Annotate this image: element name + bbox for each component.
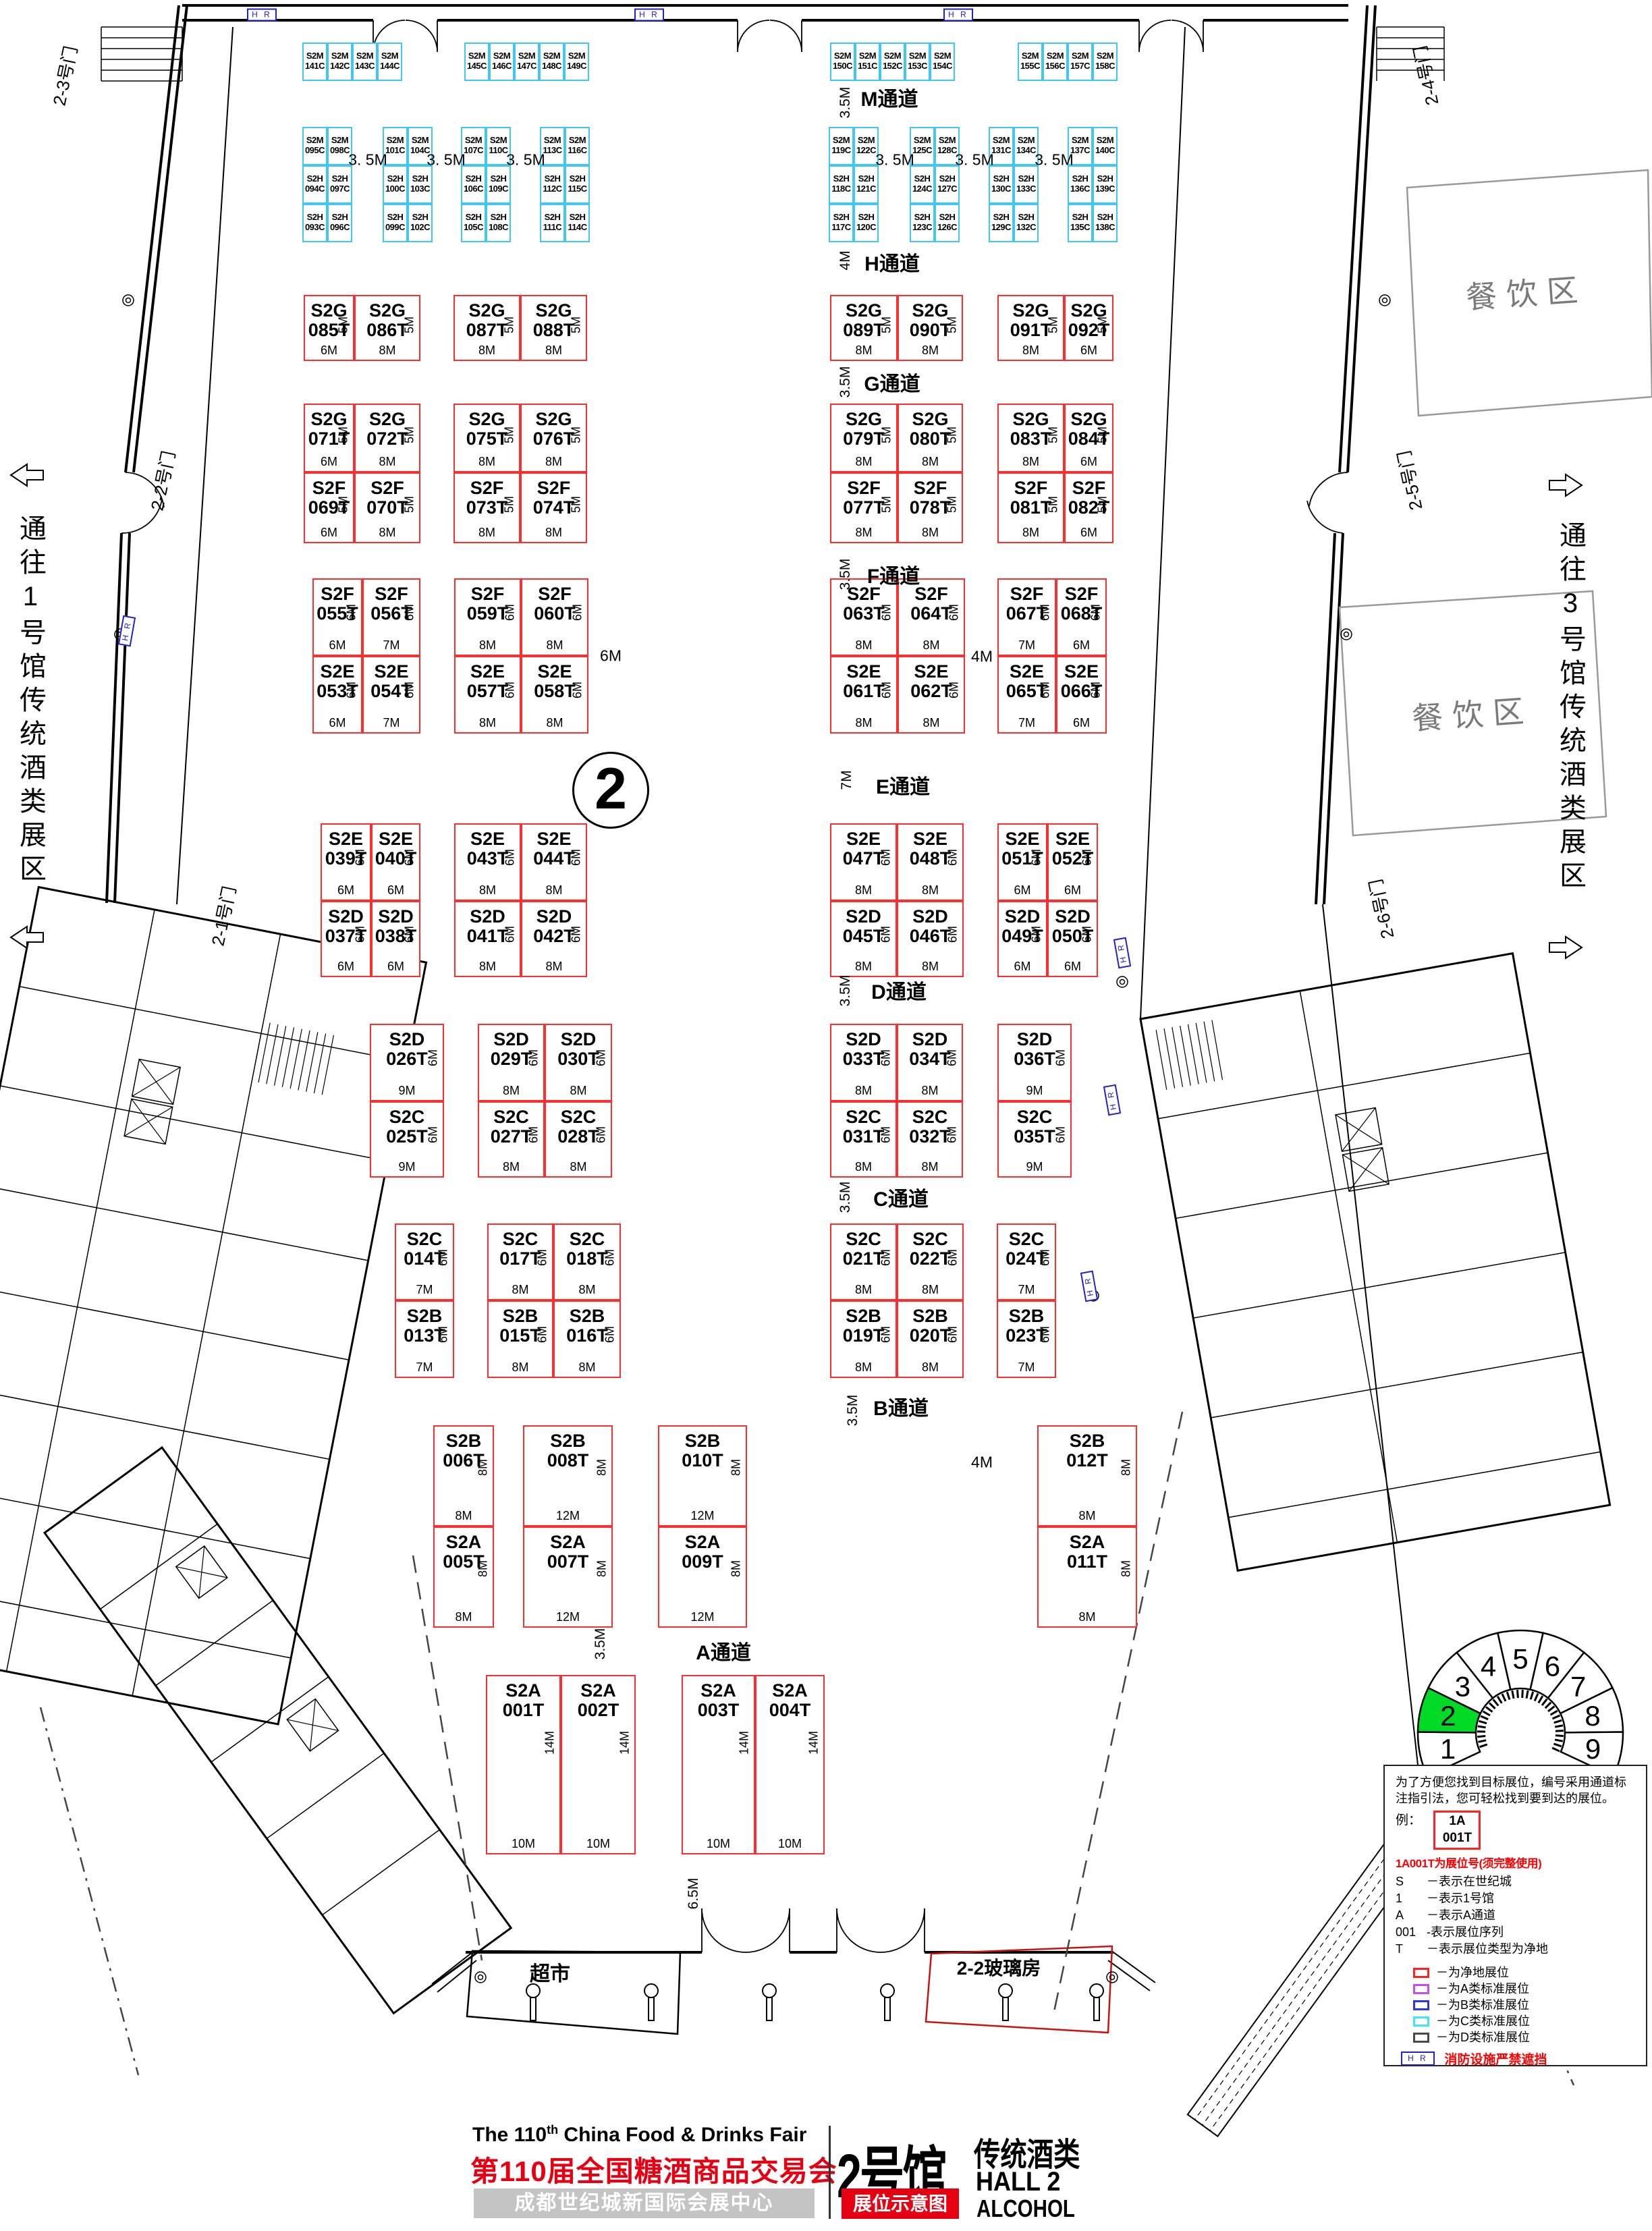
booth-S2D-034T: S2D034T6M8M [897, 1024, 963, 1101]
booth-S2H-132C: S2H132C [1014, 204, 1039, 242]
map-type-badge: 展位示意图 [842, 2188, 959, 2219]
aisle-dim: 3.5M [837, 87, 854, 119]
aisle-label-D通道: D通道 [871, 975, 927, 1005]
booth-S2H-112C: S2H112C [540, 165, 565, 204]
booth-S2B-023T: S2B023T6M7M [997, 1300, 1056, 1378]
booth-S2M-155C: S2M155C [1018, 43, 1043, 81]
floor-dim: 4M [971, 648, 993, 666]
booth-S2G-071T: S2G071T5M6M [304, 404, 354, 472]
locator-hall-number: 2 [1440, 1700, 1456, 1732]
booth-S2E-048T: S2E048T6M8M [897, 823, 964, 901]
booth-S2D-033T: S2D033T6M8M [830, 1024, 897, 1101]
booth-S2D-038T: S2D038T6M6M [371, 901, 420, 977]
booth-S2F-064T: S2F064T6M8M [898, 578, 965, 656]
booth-S2H-135C: S2H135C [1068, 204, 1093, 242]
booth-S2E-062T: S2E062T6M8M [898, 656, 965, 734]
aisle-label-B通道: B通道 [873, 1392, 929, 1421]
booth-S2H-127C: S2H127C [935, 165, 960, 204]
booth-S2F-056T: S2F056T6M7M [362, 578, 420, 656]
hall-number-circle: 2 [572, 752, 649, 829]
booth-S2C-032T: S2C032T6M8M [897, 1101, 963, 1178]
booth-S2G-083T: S2G083T5M8M [997, 404, 1064, 472]
booth-S2G-087T: S2G087T5M8M [453, 295, 520, 361]
booth-S2M-154C: S2M154C [930, 43, 955, 81]
booth-S2E-039T: S2E039T6M6M [321, 823, 371, 901]
booth-S2H-102C: S2H102C [408, 204, 433, 242]
booth-S2H-120C: S2H120C [854, 204, 879, 242]
aisle-label-A通道: A通道 [696, 1636, 751, 1665]
hall-title-en: HALL 2 [976, 2167, 1060, 2197]
booth-S2H-103C: S2H103C [408, 165, 433, 204]
booth-S2D-050T: S2D050T6M6M [1047, 901, 1098, 977]
corridor-note-left: 通往1号馆传统酒类展区 [11, 514, 50, 888]
booth-S2D-046T: S2D046T6M8M [897, 901, 964, 977]
booth-S2H-108C: S2H108C [486, 204, 511, 242]
floor-dim: 3. 5M [1035, 151, 1074, 169]
booth-S2H-123C: S2H123C [910, 204, 935, 242]
booth-S2F-059T: S2F059T6M8M [454, 578, 521, 656]
booth-S2H-138C: S2H138C [1093, 204, 1118, 242]
legend-code-line: A－表示A通道 [1396, 1907, 1635, 1924]
aisle-dim: 4M [837, 250, 854, 270]
aisle-dim: 3.5M [837, 975, 854, 1007]
booth-S2A-001T: S2A001T14M10M [486, 1675, 561, 1854]
legend-swatch-box [1413, 2000, 1429, 2010]
aisle-dim: 3.5M [837, 366, 854, 398]
booth-S2E-057T: S2E057T6M8M [454, 656, 521, 734]
booth-S2H-121C: S2H121C [854, 165, 879, 204]
booth-S2H-093C: S2H093C [302, 204, 327, 242]
booth-S2C-017T: S2C017T6M8M [487, 1223, 553, 1300]
booth-S2B-012T: S2B012T8M8M [1037, 1425, 1137, 1526]
booth-S2D-030T: S2D030T6M8M [545, 1024, 612, 1101]
booth-S2H-111C: S2H111C [540, 204, 565, 242]
booth-S2H-139C: S2H139C [1093, 165, 1118, 204]
aisle-dim: 6.5M [686, 1878, 702, 1910]
booth-S2F-067T: S2F067T6M7M [997, 578, 1056, 656]
booth-S2A-005T: S2A005T8M8M [433, 1526, 494, 1628]
booth-S2M-145C: S2M145C [464, 43, 489, 81]
booth-S2H-118C: S2H118C [829, 165, 854, 204]
booth-S2G-089T: S2G089T5M8M [830, 295, 898, 361]
booth-S2M-141C: S2M141C [302, 43, 327, 81]
booth-S2G-075T: S2G075T5M8M [453, 404, 520, 472]
legend-fire-note: 消防设施严禁遮挡 [1444, 2053, 1547, 2067]
legend-swatch-box [1413, 2033, 1429, 2043]
legend-intro: 为了方便您找到目标展位，编号采用通道标注指引法，您可轻松找到要到达的展位。 [1396, 1774, 1635, 1807]
corridor-note-right: 通往3号馆传统酒类展区 [1551, 521, 1590, 895]
booth-S2F-068T: S2F068T6M6M [1056, 578, 1107, 656]
floorplan-page: 123456789 S2G085T5M6MS2G086T5M8MS2G087T5… [0, 0, 1652, 2231]
booth-S2C-031T: S2C031T6M8M [830, 1101, 897, 1178]
booth-S2H-117C: S2H117C [829, 204, 854, 242]
booth-S2H-129C: S2H129C [989, 204, 1014, 242]
booth-S2H-114C: S2H114C [565, 204, 590, 242]
booth-S2C-025T: S2C025T6M9M [370, 1101, 444, 1178]
aisle-dim: 3.5M [837, 559, 854, 590]
booth-S2H-126C: S2H126C [935, 204, 960, 242]
booth-S2M-144C: S2M144C [377, 43, 402, 81]
locator-hall-number: 7 [1570, 1670, 1586, 1702]
booth-S2A-007T: S2A007T8M12M [523, 1526, 613, 1628]
booth-S2C-035T: S2C035T6M9M [997, 1101, 1072, 1178]
legend-code-line: S－表示在世纪城 [1396, 1873, 1635, 1890]
booth-S2C-022T: S2C022T6M8M [897, 1223, 964, 1300]
legend-example-line2: 001T [1435, 1829, 1479, 1846]
aisle-label-F通道: F通道 [867, 559, 920, 589]
booth-S2D-026T: S2D026T6M9M [370, 1024, 444, 1101]
booth-S2E-066T: S2E066T6M6M [1056, 656, 1107, 734]
floor-dim: 3. 5M [506, 151, 545, 169]
booth-S2M-147C: S2M147C [514, 43, 539, 81]
booth-S2E-043T: S2E043T6M8M [454, 823, 521, 901]
hr-box-0: H R [247, 9, 277, 22]
legend-swatch-row: －为D类标准展位 [1413, 2029, 1635, 2045]
aisle-dim: 3.5M [837, 1182, 854, 1213]
booth-S2M-116C: S2M116C [565, 127, 590, 165]
booth-S2H-130C: S2H130C [989, 165, 1014, 204]
booth-S2E-052T: S2E052T6M6M [1047, 823, 1098, 901]
booth-S2G-086T: S2G086T5M8M [354, 295, 420, 361]
booth-S2H-094C: S2H094C [302, 165, 327, 204]
booth-S2M-151C: S2M151C [855, 43, 880, 81]
legend-example-label: 例： [1396, 1813, 1421, 1827]
booth-S2D-029T: S2D029T6M8M [478, 1024, 545, 1101]
booth-S2M-095C: S2M095C [302, 127, 327, 165]
title-divider [829, 2126, 831, 2219]
floor-dim: 4M [971, 1454, 993, 1472]
booth-S2B-006T: S2B006T8M8M [433, 1425, 494, 1526]
floor-dim: 6M [600, 647, 622, 665]
booth-S2E-058T: S2E058T6M8M [521, 656, 588, 734]
hall-locator-fan: 123456789 [1418, 1630, 1623, 1776]
fair-title-cn: 第110届全国糖酒商品交易会 [470, 2149, 837, 2190]
booth-S2C-018T: S2C018T6M8M [553, 1223, 621, 1300]
floor-dim: 3. 5M [348, 151, 387, 169]
booth-S2D-036T: S2D036T6M9M [997, 1024, 1072, 1101]
hr-box-2: H R [943, 9, 973, 22]
booth-S2H-099C: S2H099C [383, 204, 408, 242]
booth-S2G-085T: S2G085T5M6M [304, 295, 354, 361]
booth-S2B-008T: S2B008T8M12M [523, 1425, 613, 1526]
locator-hall-number: 6 [1545, 1650, 1560, 1682]
booth-S2H-136C: S2H136C [1068, 165, 1093, 204]
aisle-label-H通道: H通道 [864, 247, 920, 277]
booth-S2H-109C: S2H109C [486, 165, 511, 204]
booth-S2M-143C: S2M143C [352, 43, 377, 81]
hr-box-1: H R [634, 9, 664, 22]
booth-S2B-020T: S2B020T6M8M [897, 1300, 964, 1378]
legend-swatch-row: －为净地展位 [1413, 1964, 1635, 1981]
booth-S2G-092T: S2G092T5M6M [1064, 295, 1113, 361]
booth-S2C-021T: S2C021T6M8M [830, 1223, 897, 1300]
booth-S2F-074T: S2F074T5M8M [520, 472, 587, 543]
booth-S2E-044T: S2E044T6M8M [521, 823, 587, 901]
booth-S2E-047T: S2E047T6M8M [830, 823, 897, 901]
locator-hall-number: 8 [1585, 1700, 1600, 1732]
booth-S2A-002T: S2A002T14M10M [561, 1675, 636, 1854]
supermarket-label: 超市 [530, 1957, 570, 1987]
aisle-label-C通道: C通道 [873, 1182, 929, 1212]
booth-S2M-157C: S2M157C [1068, 43, 1093, 81]
booth-S2M-140C: S2M140C [1093, 127, 1118, 165]
booth-S2M-158C: S2M158C [1093, 43, 1118, 81]
booth-S2M-146C: S2M146C [489, 43, 514, 81]
booth-S2H-133C: S2H133C [1014, 165, 1039, 204]
booth-S2H-105C: S2H105C [461, 204, 486, 242]
legend-code-line: 1－表示1号馆 [1396, 1890, 1635, 1907]
floor-dim: 3. 5M [955, 151, 994, 169]
booth-S2M-148C: S2M148C [539, 43, 564, 81]
booth-S2B-013T: S2B013T6M7M [395, 1300, 454, 1378]
booth-S2M-149C: S2M149C [564, 43, 589, 81]
booth-S2E-061T: S2E061T6M8M [830, 656, 898, 734]
booth-S2C-027T: S2C027T6M8M [478, 1101, 545, 1178]
booth-S2M-153C: S2M153C [905, 43, 930, 81]
booth-S2D-042T: S2D042T6M8M [521, 901, 587, 977]
venue-bar: 成都世纪城新国际会展中心 [474, 2188, 815, 2218]
legend-swatch-row: －为C类标准展位 [1413, 2013, 1635, 2029]
aisle-dim: 3.5M [593, 1628, 609, 1660]
booth-S2M-156C: S2M156C [1043, 43, 1068, 81]
legend-swatch-box [1413, 1968, 1429, 1978]
legend-example-booth: 1A 001T [1433, 1811, 1481, 1850]
booth-S2F-070T: S2F070T5M8M [354, 472, 420, 543]
booth-S2M-119C: S2M119C [829, 127, 854, 165]
booth-S2C-028T: S2C028T6M8M [545, 1101, 612, 1178]
booth-S2B-010T: S2B010T8M12M [658, 1425, 747, 1526]
booth-S2H-096C: S2H096C [327, 204, 352, 242]
legend-code-line: 001-表示展位序列 [1396, 1924, 1635, 1941]
booth-S2E-065T: S2E065T6M7M [997, 656, 1056, 734]
booth-S2F-077T: S2F077T5M8M [830, 472, 898, 543]
booth-S2F-082T: S2F082T5M6M [1064, 472, 1113, 543]
locator-hall-number: 3 [1455, 1670, 1470, 1702]
locator-hall-number: 4 [1481, 1650, 1496, 1682]
booth-S2A-009T: S2A009T8M12M [658, 1526, 747, 1628]
legend-hr-box: H R [1401, 2051, 1435, 2066]
booth-S2F-060T: S2F060T6M8M [521, 578, 588, 656]
booth-S2F-069T: S2F069T5M6M [304, 472, 354, 543]
booth-S2B-016T: S2B016T6M8M [553, 1300, 621, 1378]
category-title-en: ALCOHOL [976, 2195, 1075, 2223]
booth-S2H-097C: S2H097C [327, 165, 352, 204]
booth-S2G-080T: S2G080T5M8M [898, 404, 963, 472]
glasshouse-label: 2-2玻璃房 [957, 1954, 1041, 1981]
booth-S2G-088T: S2G088T5M8M [520, 295, 587, 361]
aisle-dim: 7M [839, 770, 855, 790]
booth-S2G-091T: S2G091T5M8M [997, 295, 1064, 361]
booth-S2G-079T: S2G079T5M8M [830, 404, 898, 472]
booth-S2G-084T: S2G084T5M6M [1064, 404, 1113, 472]
legend-swatch-row: －为B类标准展位 [1413, 1997, 1635, 2013]
legend-swatch-box [1413, 2016, 1429, 2027]
booth-S2H-100C: S2H100C [383, 165, 408, 204]
aisle-label-G通道: G通道 [864, 367, 920, 397]
locator-hall-number: 1 [1440, 1733, 1456, 1765]
booth-S2H-115C: S2H115C [565, 165, 590, 204]
booth-S2F-073T: S2F073T5M8M [453, 472, 520, 543]
legend-swatches: －为净地展位－为A类标准展位－为B类标准展位－为C类标准展位－为D类标准展位 [1396, 1964, 1635, 2045]
booth-S2C-024T: S2C024T6M7M [997, 1223, 1056, 1300]
booth-S2D-049T: S2D049T6M6M [997, 901, 1047, 977]
booth-S2A-004T: S2A004T14M10M [755, 1675, 825, 1854]
legend-swatch-box [1413, 1984, 1429, 1994]
booth-S2E-053T: S2E053T6M6M [312, 656, 362, 734]
booth-S2C-014T: S2C014T6M7M [395, 1223, 454, 1300]
legend-code-line: T－表示展位类型为净地 [1396, 1941, 1635, 1958]
legend-panel: 为了方便您找到目标展位，编号采用通道标注指引法，您可轻松找到要到达的展位。 例：… [1383, 1765, 1647, 2066]
legend-example-note: 1A001T为展位号(须完整使用) [1396, 1854, 1635, 1871]
booth-S2M-150C: S2M150C [830, 43, 855, 81]
booth-S2E-051T: S2E051T6M6M [997, 823, 1047, 901]
booth-S2F-055T: S2F055T6M6M [312, 578, 362, 656]
legend-code-lines: S－表示在世纪城1－表示1号馆A－表示A通道001-表示展位序列T－表示展位类型… [1396, 1873, 1635, 1958]
booth-S2D-041T: S2D041T6M8M [454, 901, 521, 977]
legend-swatch-row: －为A类标准展位 [1413, 1981, 1635, 1997]
booth-S2G-076T: S2G076T5M8M [520, 404, 587, 472]
dining-area-label-bottom: 餐饮区 [1410, 686, 1535, 739]
booth-S2F-081T: S2F081T5M8M [997, 472, 1064, 543]
aisle-label-M通道: M通道 [861, 82, 918, 112]
legend-example-line1: 1A [1435, 1813, 1479, 1829]
booth-S2D-037T: S2D037T6M6M [321, 901, 371, 977]
aisle-label-E通道: E通道 [876, 770, 930, 800]
booth-S2F-078T: S2F078T5M8M [898, 472, 963, 543]
booth-S2A-011T: S2A011T8M8M [1037, 1526, 1137, 1628]
booth-S2M-152C: S2M152C [880, 43, 905, 81]
booth-S2E-040T: S2E040T6M6M [371, 823, 420, 901]
aisle-dim: 3.5M [845, 1395, 861, 1427]
booth-S2M-142C: S2M142C [327, 43, 352, 81]
locator-hall-number: 5 [1512, 1643, 1528, 1675]
booth-S2A-003T: S2A003T14M10M [682, 1675, 755, 1854]
locator-hall-number: 9 [1585, 1733, 1601, 1765]
floor-dim: 3. 5M [426, 151, 466, 169]
fair-title-en: The 110th China Food & Drinks Fair [472, 2123, 806, 2147]
floor-dim: 3. 5M [875, 151, 914, 169]
booth-S2H-106C: S2H106C [461, 165, 486, 204]
booth-S2G-090T: S2G090T5M8M [898, 295, 963, 361]
booth-S2B-019T: S2B019T6M8M [830, 1300, 897, 1378]
booth-S2H-124C: S2H124C [910, 165, 935, 204]
dining-area-label-top: 餐饮区 [1464, 265, 1589, 318]
booth-S2B-015T: S2B015T6M8M [487, 1300, 553, 1378]
booth-S2D-045T: S2D045T6M8M [830, 901, 897, 977]
booth-S2E-054T: S2E054T6M7M [362, 656, 420, 734]
booth-S2G-072T: S2G072T5M8M [354, 404, 420, 472]
